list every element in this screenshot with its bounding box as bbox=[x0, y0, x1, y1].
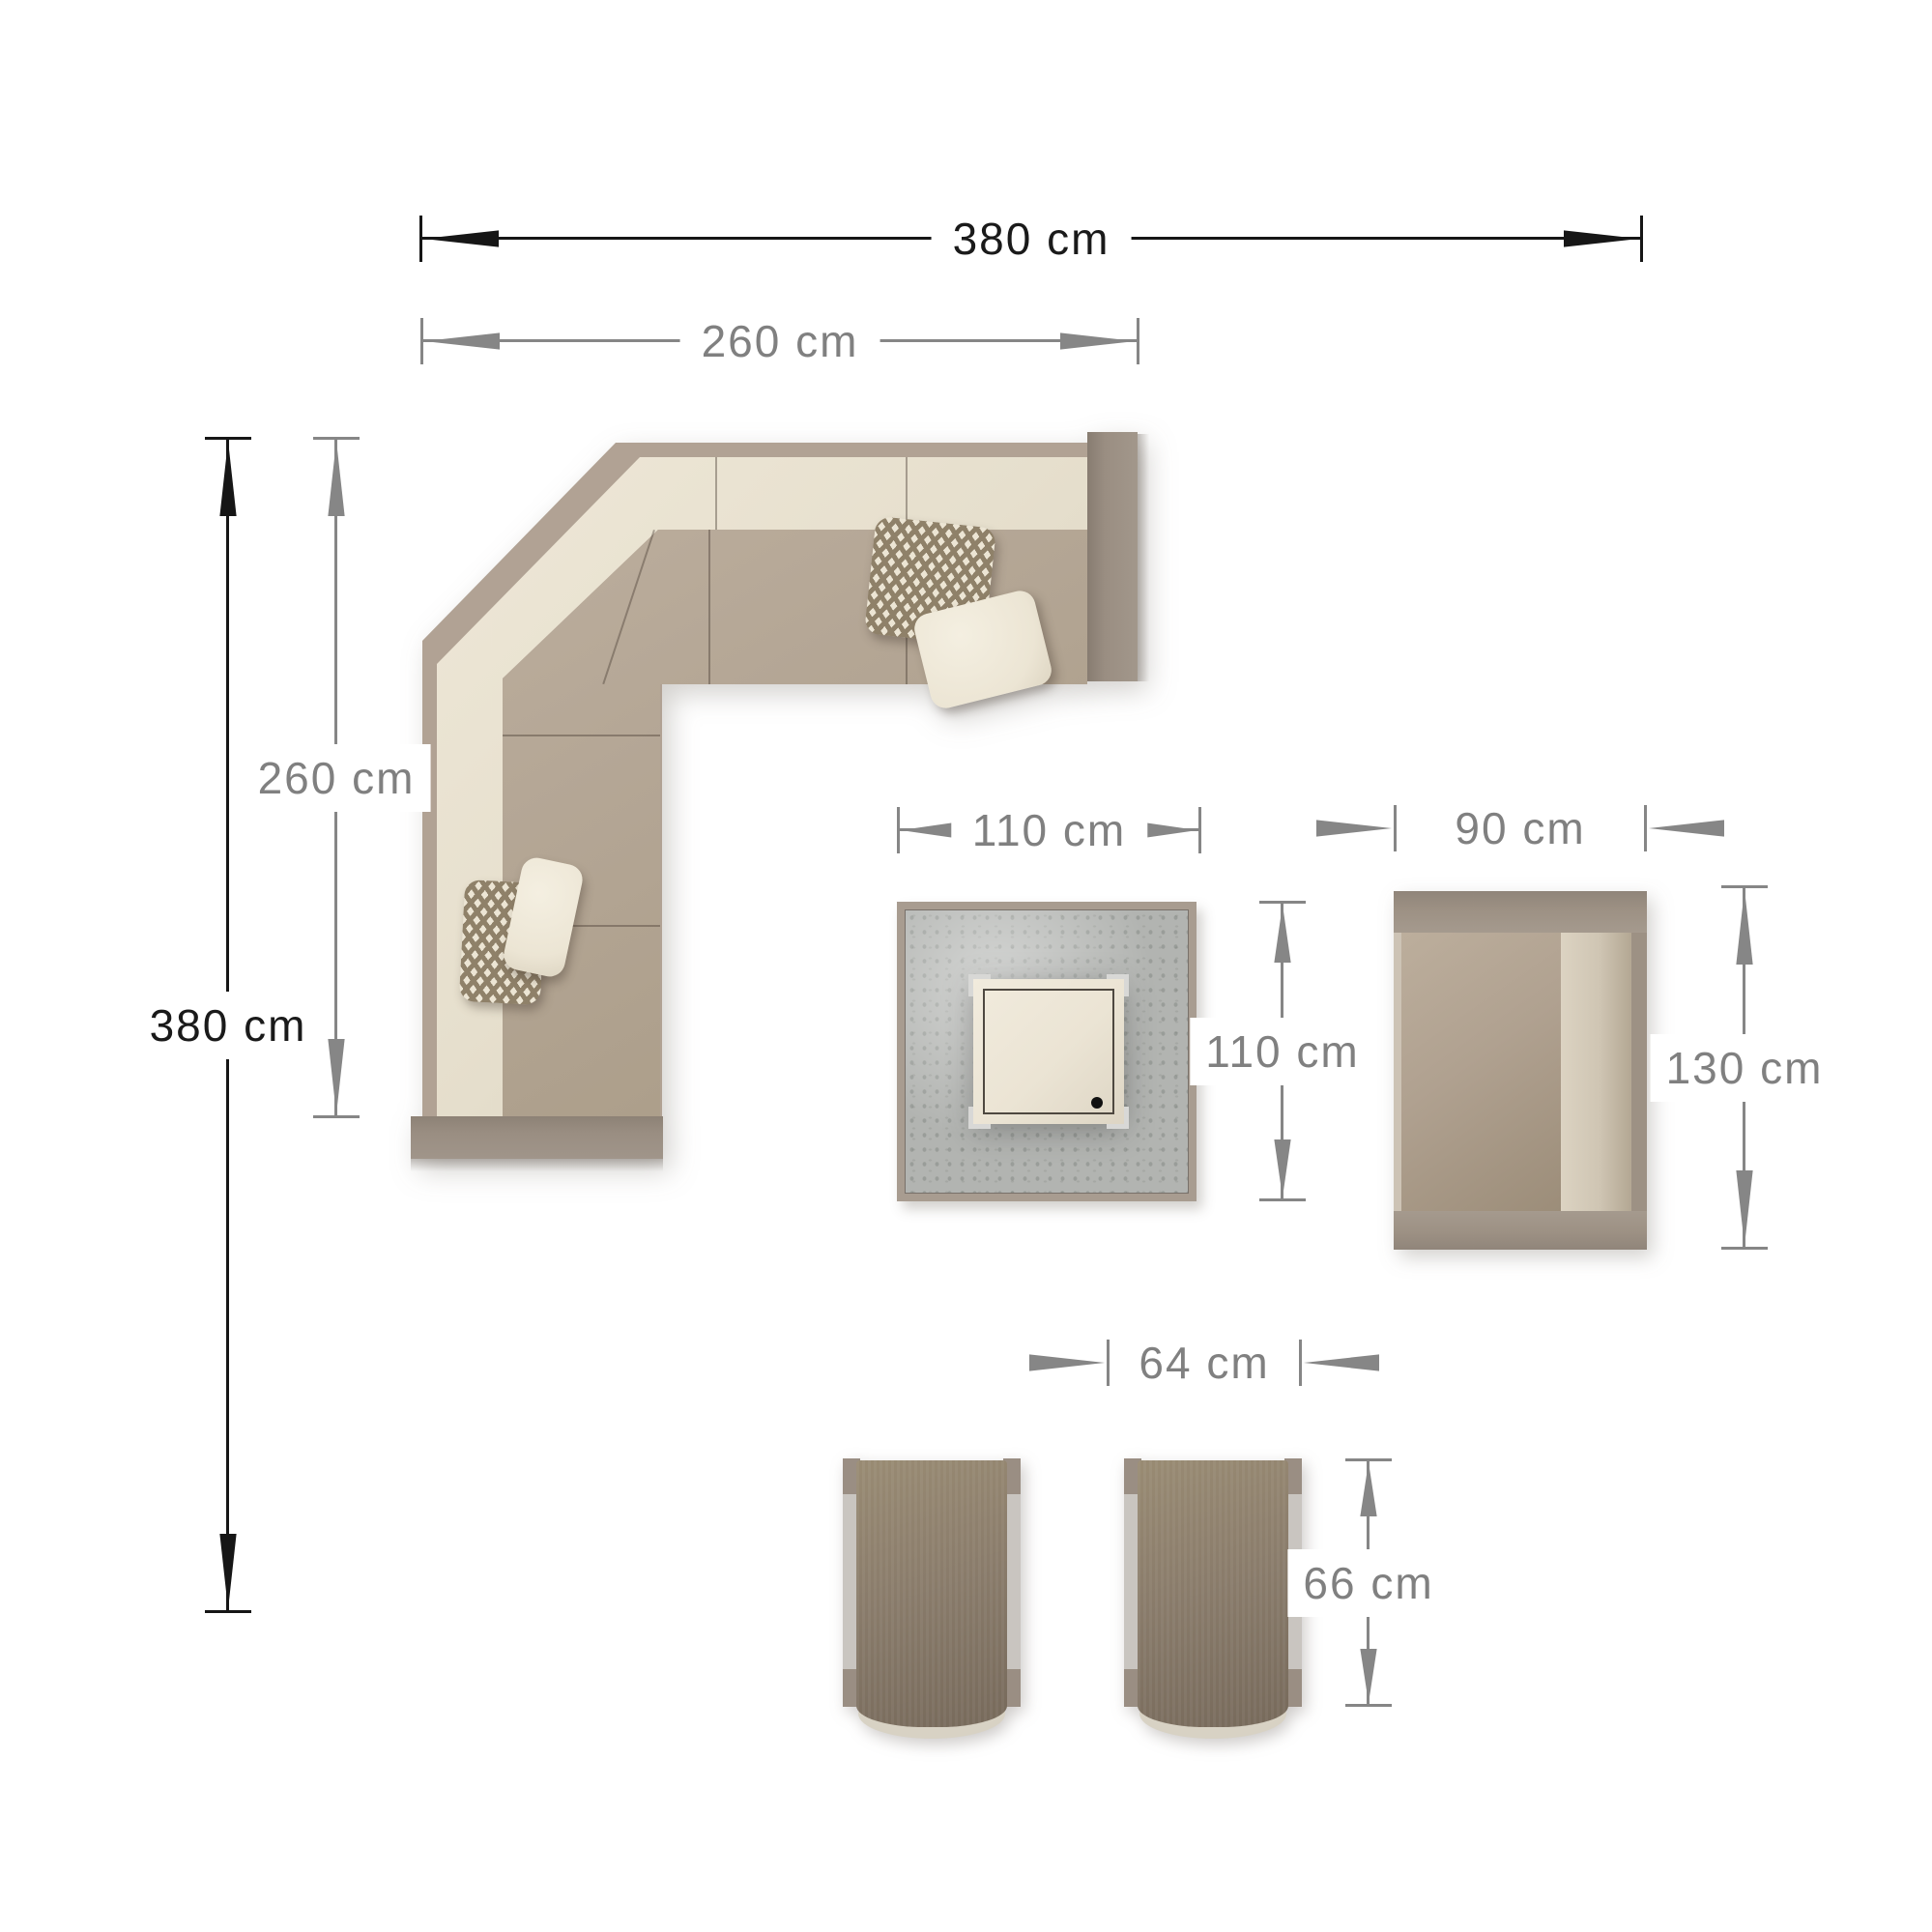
arrow-right-icon bbox=[1564, 227, 1639, 250]
dimension-tick bbox=[1259, 901, 1306, 904]
dimension-label: 110 cm bbox=[1190, 1018, 1374, 1085]
dimension-tick bbox=[1345, 1704, 1392, 1707]
dimension-tick bbox=[205, 437, 251, 440]
stool bbox=[1124, 1458, 1302, 1740]
armrest-shadow bbox=[411, 1159, 663, 1171]
dimension-tick bbox=[205, 1610, 251, 1613]
furniture-dimension-diagram: 380 cm 260 cm 380 cm 260 cm 110 cm bbox=[0, 0, 1932, 1932]
cushion-seam bbox=[708, 530, 710, 684]
dimension-label: 380 cm bbox=[134, 992, 323, 1059]
dimension-tick bbox=[1640, 216, 1643, 262]
stool-seat-fabric bbox=[1138, 1460, 1288, 1727]
dimension-label: 260 cm bbox=[243, 744, 431, 812]
arrow-right-icon bbox=[1139, 819, 1197, 842]
dimension-tick bbox=[313, 1115, 360, 1118]
armchair-armrest-bottom bbox=[1394, 1211, 1647, 1250]
armchair-back-cushion bbox=[1561, 933, 1631, 1211]
arrow-up-icon bbox=[1271, 905, 1294, 963]
dimension-tick bbox=[420, 318, 423, 364]
dimension-tick bbox=[313, 437, 360, 440]
arrow-up-icon bbox=[1733, 889, 1756, 965]
arrow-left-icon bbox=[423, 227, 499, 250]
cushion-seam bbox=[715, 457, 717, 530]
arrow-right-icon bbox=[1029, 1351, 1105, 1374]
arrow-left-icon bbox=[1304, 1351, 1379, 1374]
fire-pit-lid-panel bbox=[983, 989, 1114, 1114]
dimension-tick bbox=[1137, 318, 1139, 364]
sofa-armrest-right bbox=[1087, 432, 1138, 681]
dimension-tick bbox=[1721, 885, 1768, 888]
dimension-label: 380 cm bbox=[932, 209, 1132, 269]
armchair-armrest-top bbox=[1394, 891, 1647, 933]
stool-seat-fabric bbox=[856, 1460, 1007, 1727]
dimension-label: 66 cm bbox=[1287, 1549, 1449, 1617]
sofa-armrest-bottom bbox=[411, 1116, 663, 1159]
arrow-down-icon bbox=[325, 1039, 348, 1114]
dimension-tick bbox=[1345, 1458, 1392, 1461]
fire-pit-lid bbox=[973, 979, 1124, 1124]
dimension-label: 90 cm bbox=[1433, 798, 1606, 858]
arrow-up-icon bbox=[325, 441, 348, 516]
dimension-label: 110 cm bbox=[951, 800, 1147, 860]
dimension-tick bbox=[1721, 1247, 1768, 1250]
arrow-left-icon bbox=[424, 330, 500, 353]
dimension-tick bbox=[1644, 805, 1647, 851]
fire-pit-table bbox=[897, 902, 1197, 1201]
armrest-shadow bbox=[1138, 434, 1149, 681]
dimension-tick bbox=[1259, 1198, 1306, 1201]
dimension-label: 64 cm bbox=[1117, 1333, 1290, 1393]
arrow-up-icon bbox=[1357, 1462, 1380, 1516]
arrow-down-icon bbox=[1271, 1139, 1294, 1197]
arrow-down-icon bbox=[1357, 1649, 1380, 1703]
fire-pit-ignition-dot bbox=[1091, 1097, 1103, 1109]
arrow-down-icon bbox=[216, 1534, 240, 1609]
arrow-right-icon bbox=[1316, 817, 1392, 840]
arrow-up-icon bbox=[216, 441, 240, 516]
armchair-back-frame bbox=[1631, 933, 1647, 1211]
arrow-right-icon bbox=[1060, 330, 1136, 353]
dimension-label: 130 cm bbox=[1651, 1034, 1839, 1102]
cushion-seam bbox=[503, 735, 660, 736]
dimension-tick bbox=[1107, 1340, 1110, 1386]
dimension-tick bbox=[1394, 805, 1397, 851]
armchair bbox=[1394, 891, 1647, 1250]
dimension-tick bbox=[1299, 1340, 1302, 1386]
dimension-tick bbox=[419, 216, 422, 262]
arrow-down-icon bbox=[1733, 1170, 1756, 1246]
armchair-seat bbox=[1401, 933, 1561, 1211]
dimension-tick bbox=[1198, 807, 1201, 853]
arrow-left-icon bbox=[1649, 817, 1724, 840]
stool bbox=[843, 1458, 1021, 1740]
dimension-label: 260 cm bbox=[680, 311, 880, 371]
